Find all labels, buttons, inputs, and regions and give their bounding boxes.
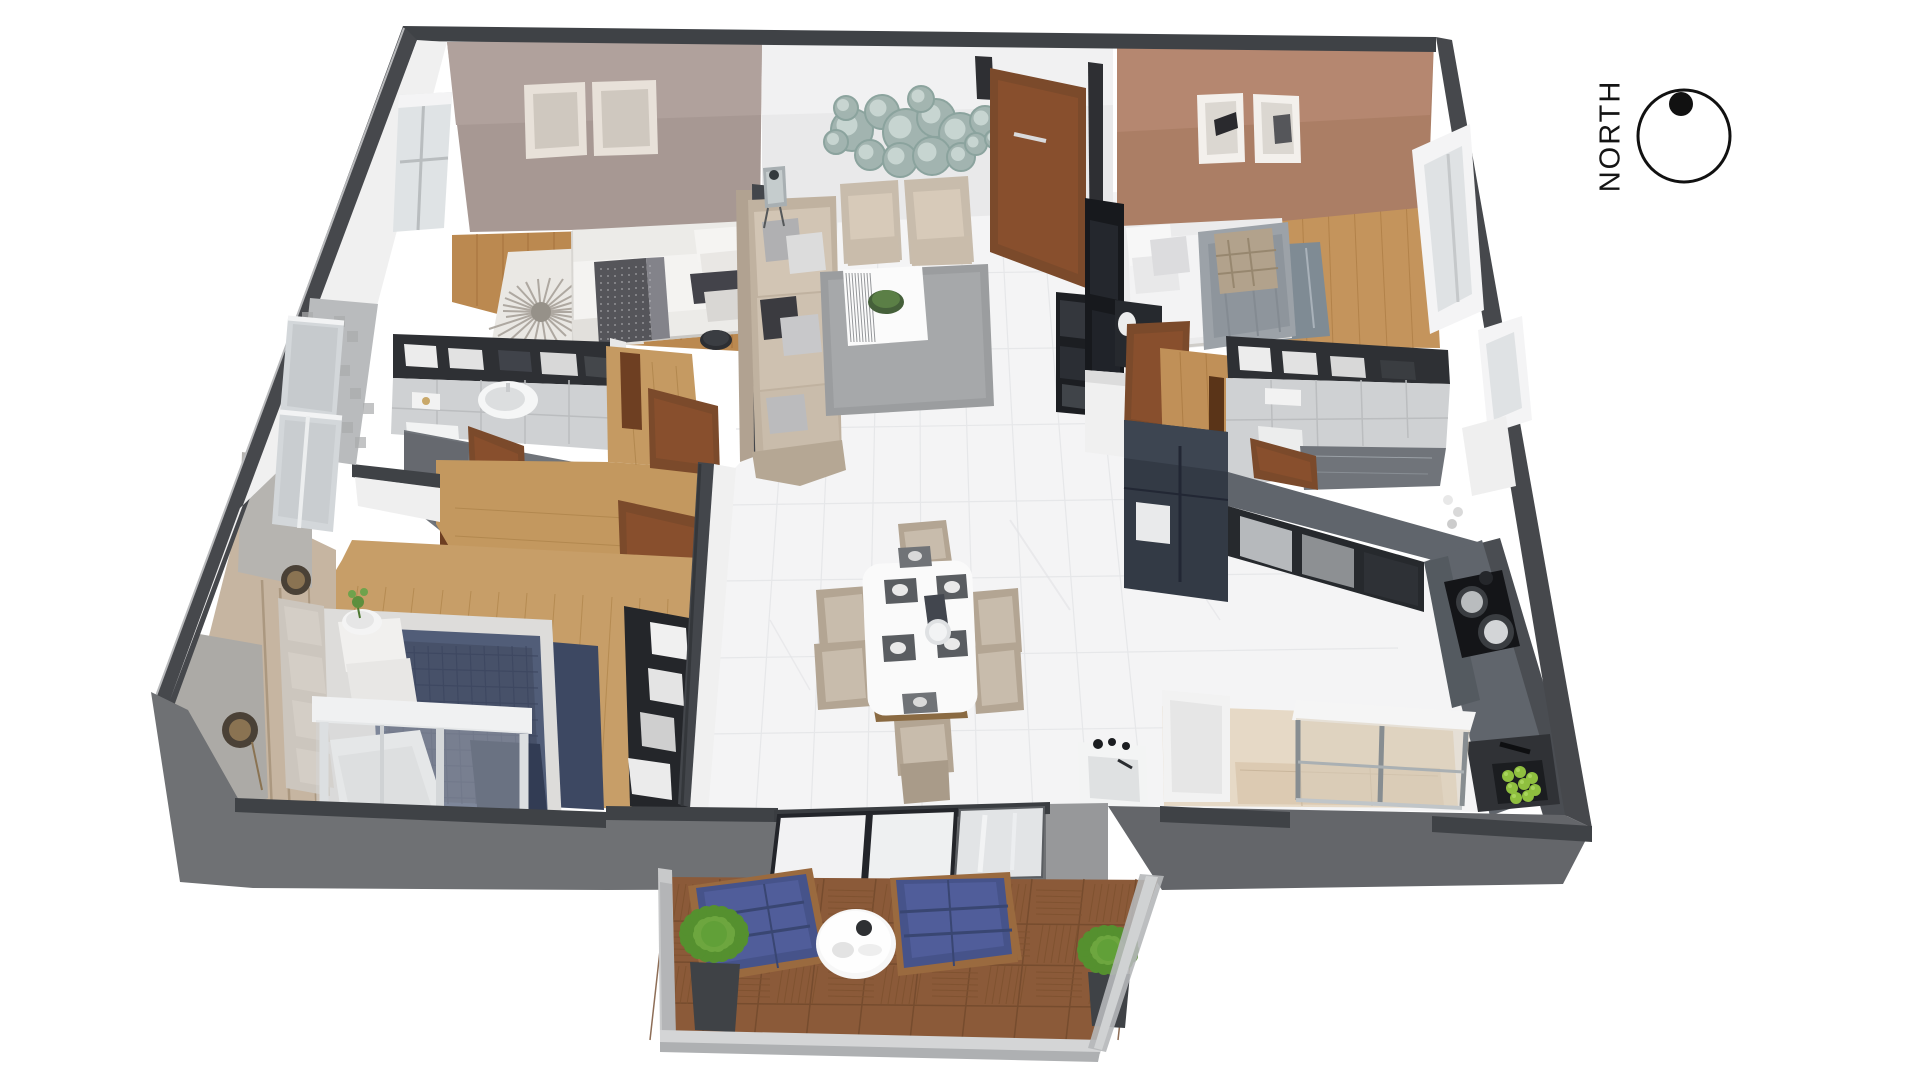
svg-text:NORTH: NORTH — [1595, 80, 1627, 193]
